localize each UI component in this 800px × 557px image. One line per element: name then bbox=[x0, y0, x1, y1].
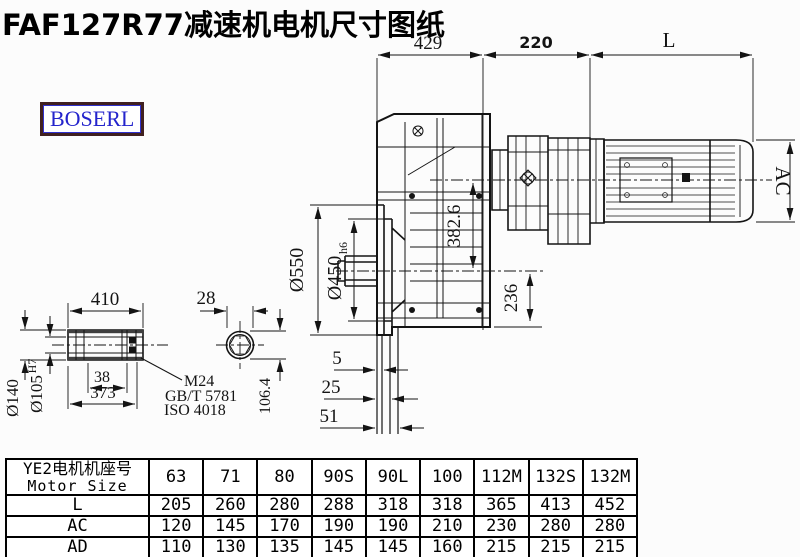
table-cell: 318 bbox=[366, 495, 420, 516]
dim-text-140: Ø140 bbox=[3, 379, 22, 417]
table-cell: 120 bbox=[149, 516, 203, 537]
motor-size-table: YE2电机机座号 Motor Size 63 71 80 90S 90L 100… bbox=[5, 458, 638, 557]
adapter-bolt-icon bbox=[520, 170, 536, 186]
bolt-callout: M24 GB/T 5781 ISO 4018 bbox=[164, 373, 237, 419]
dim-text-382: 382.6 bbox=[444, 205, 465, 248]
centerlines bbox=[52, 180, 772, 369]
table-cell: 210 bbox=[420, 516, 474, 537]
flange-bolt-icon bbox=[476, 307, 482, 313]
motor-fins bbox=[606, 146, 735, 216]
electric-motor bbox=[604, 140, 753, 222]
top-dimension-chain: 429 220 L bbox=[378, 28, 752, 55]
main-view-dimensions: AC 382.6 236 Ø550 Ø450 h6 5 25 51 bbox=[286, 142, 795, 428]
table-cell: 135 bbox=[257, 537, 311, 557]
table-cell: 318 bbox=[420, 495, 474, 516]
table-cell: 260 bbox=[203, 495, 257, 516]
shaft-knurl-band bbox=[68, 357, 143, 360]
table-header-row: YE2电机机座号 Motor Size 63 71 80 90S 90L 100… bbox=[6, 459, 637, 495]
table-cell: 215 bbox=[529, 537, 583, 557]
dim-text-5: 5 bbox=[332, 348, 342, 369]
callout-iso: ISO 4018 bbox=[164, 402, 226, 419]
table-row-L: L 205 260 280 288 318 318 365 413 452 bbox=[6, 495, 637, 516]
column-header: 90S bbox=[312, 459, 366, 495]
bolt-leader-line bbox=[141, 358, 182, 380]
dim-text-25: 25 bbox=[322, 377, 341, 398]
flange-bolt-icon bbox=[409, 307, 415, 313]
table-cell: 215 bbox=[583, 537, 637, 557]
flange-bolt-icon bbox=[409, 193, 415, 199]
r77-input-stage bbox=[492, 136, 604, 244]
column-header: 63 bbox=[149, 459, 203, 495]
dim-text-450-tol: h6 bbox=[336, 242, 350, 254]
dim-text-429: 429 bbox=[414, 33, 443, 54]
table-cell: 230 bbox=[474, 516, 528, 537]
dim-text-410: 410 bbox=[91, 289, 120, 310]
table-cell: 110 bbox=[149, 537, 203, 557]
motor-body-outline bbox=[604, 140, 753, 222]
retaining-ring bbox=[129, 347, 136, 353]
header-line2: Motor Size bbox=[7, 478, 148, 495]
table-cell: 280 bbox=[257, 495, 311, 516]
table-cell: 215 bbox=[474, 537, 528, 557]
dim-text-550: Ø550 bbox=[286, 248, 308, 292]
column-header: 132M bbox=[583, 459, 637, 495]
table-row-AC: AC 120 145 170 190 190 210 230 280 280 bbox=[6, 516, 637, 537]
table-cell: 452 bbox=[583, 495, 637, 516]
technical-drawing-canvas: 429 220 L bbox=[0, 0, 800, 457]
header-line1: YE2电机机座号 bbox=[7, 460, 148, 478]
dim-text-28: 28 bbox=[197, 288, 216, 309]
dim-text-105-tol: H7 bbox=[25, 359, 39, 374]
row-label: AD bbox=[6, 537, 149, 557]
table-cell: 145 bbox=[203, 516, 257, 537]
hollow-shaft-detail: 410 Ø140 Ø105 H7 38 373 28 106.4 M24 GB/… bbox=[3, 288, 280, 419]
column-header: 90L bbox=[366, 459, 420, 495]
gearbox-corner-bolt-icon bbox=[413, 126, 423, 136]
row-label: AC bbox=[6, 516, 149, 537]
flange-profile bbox=[338, 205, 405, 335]
row-label: L bbox=[6, 495, 149, 516]
flange-face-lines bbox=[377, 327, 398, 434]
dim-text-1064: 106.4 bbox=[257, 378, 274, 414]
column-header: 71 bbox=[203, 459, 257, 495]
table-cell: 145 bbox=[312, 537, 366, 557]
table-cell: 205 bbox=[149, 495, 203, 516]
dim-text-236: 236 bbox=[501, 284, 522, 313]
table-cell: 170 bbox=[257, 516, 311, 537]
table-cell: 160 bbox=[420, 537, 474, 557]
motor-eyebolt-block bbox=[682, 173, 690, 182]
column-header: 132S bbox=[529, 459, 583, 495]
shaft-knurl-band bbox=[68, 330, 143, 333]
table-cell: 365 bbox=[474, 495, 528, 516]
dim-text-L: L bbox=[663, 28, 676, 52]
dim-text-105: Ø105 bbox=[27, 375, 46, 413]
table-cell: 413 bbox=[529, 495, 583, 516]
column-header: 80 bbox=[257, 459, 311, 495]
dim-text-AC: AC bbox=[771, 166, 795, 195]
table-cell: 280 bbox=[529, 516, 583, 537]
column-header: 100 bbox=[420, 459, 474, 495]
drawing-sheet: FAF127R77减速机电机尺寸图纸 BOSERL 429 220 L bbox=[0, 0, 800, 557]
table-row-AD: AD 110 130 135 145 145 160 215 215 215 bbox=[6, 537, 637, 557]
flange-bolt-icon bbox=[476, 193, 482, 199]
dim-text-373: 373 bbox=[90, 383, 116, 402]
dim-text-450: Ø450 bbox=[324, 256, 346, 300]
table-cell: 280 bbox=[583, 516, 637, 537]
table-cell: 288 bbox=[312, 495, 366, 516]
output-flange bbox=[338, 205, 405, 434]
table-cell: 190 bbox=[312, 516, 366, 537]
column-header: 112M bbox=[474, 459, 528, 495]
table-corner-header: YE2电机机座号 Motor Size bbox=[6, 459, 149, 495]
table-cell: 145 bbox=[366, 537, 420, 557]
retaining-ring bbox=[129, 338, 136, 344]
table-cell: 190 bbox=[366, 516, 420, 537]
table-cell: 130 bbox=[203, 537, 257, 557]
dim-text-51: 51 bbox=[320, 406, 339, 427]
dim-text-220: 220 bbox=[519, 33, 552, 52]
